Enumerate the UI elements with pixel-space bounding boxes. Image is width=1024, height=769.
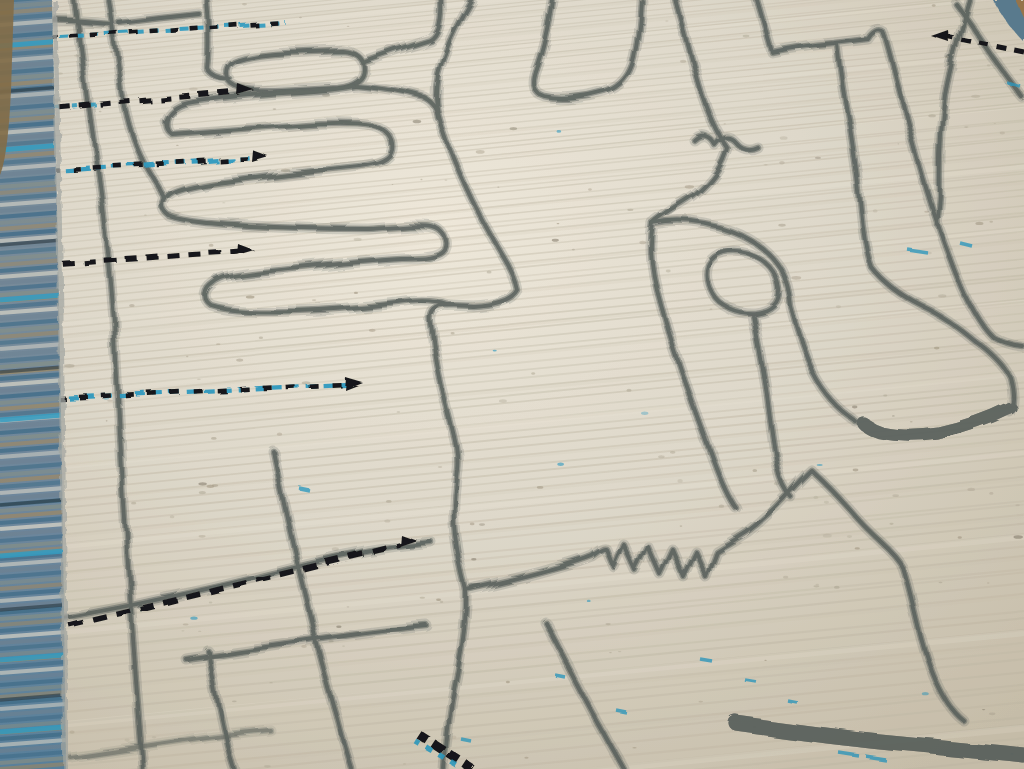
rug-illustration (0, 0, 1024, 769)
rug-photo (0, 0, 1024, 769)
vignette-overlay (0, 0, 1024, 769)
